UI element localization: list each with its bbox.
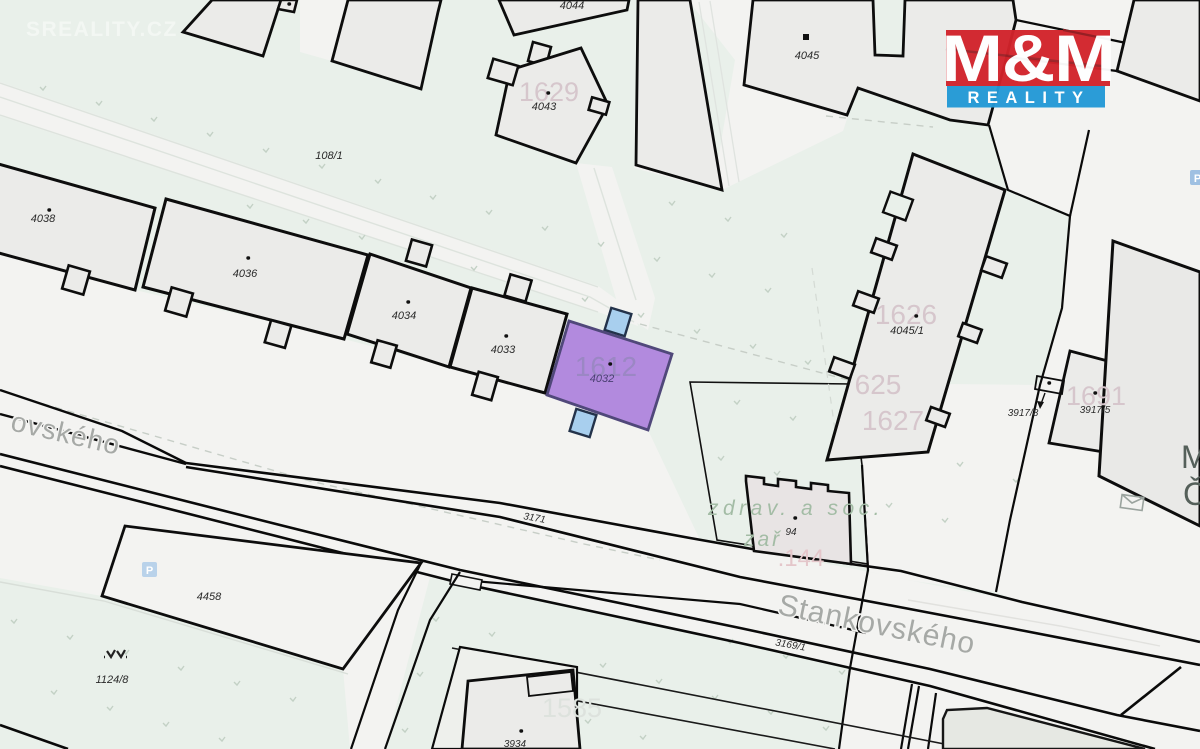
- svg-text:REALITY: REALITY: [967, 89, 1090, 107]
- svg-text:P: P: [1194, 173, 1200, 185]
- svg-text:zař: zař: [743, 528, 782, 551]
- svg-text:4045: 4045: [795, 50, 820, 62]
- svg-text:1124/8: 1124/8: [96, 674, 130, 686]
- svg-text:M&M: M&M: [941, 22, 1114, 95]
- svg-text:SREALITY.CZ: SREALITY.CZ: [26, 18, 178, 41]
- svg-text:M: M: [1181, 439, 1200, 475]
- svg-text:4032: 4032: [590, 373, 614, 385]
- svg-text:94: 94: [785, 527, 797, 538]
- svg-text:4034: 4034: [392, 310, 416, 322]
- svg-text:108/1: 108/1: [315, 150, 343, 162]
- svg-text:4036: 4036: [233, 268, 258, 280]
- svg-text:1585: 1585: [542, 693, 602, 723]
- svg-text:625: 625: [855, 369, 902, 400]
- svg-text:4043: 4043: [532, 101, 557, 113]
- svg-text:3917/8: 3917/8: [1008, 408, 1039, 419]
- svg-text:4038: 4038: [31, 213, 56, 225]
- svg-text:4033: 4033: [491, 344, 516, 356]
- svg-text:P: P: [146, 565, 153, 577]
- svg-text:zdrav. a soc.: zdrav. a soc.: [707, 497, 884, 520]
- svg-text:3917/5: 3917/5: [1080, 405, 1111, 416]
- svg-text:4045/1: 4045/1: [890, 325, 924, 337]
- svg-text:4458: 4458: [197, 591, 222, 603]
- svg-text:4044: 4044: [560, 0, 584, 12]
- svg-text:3934: 3934: [504, 739, 527, 749]
- svg-text:1627: 1627: [862, 405, 924, 436]
- svg-text:.144: .144: [778, 545, 825, 572]
- svg-text:Č: Č: [1183, 476, 1200, 512]
